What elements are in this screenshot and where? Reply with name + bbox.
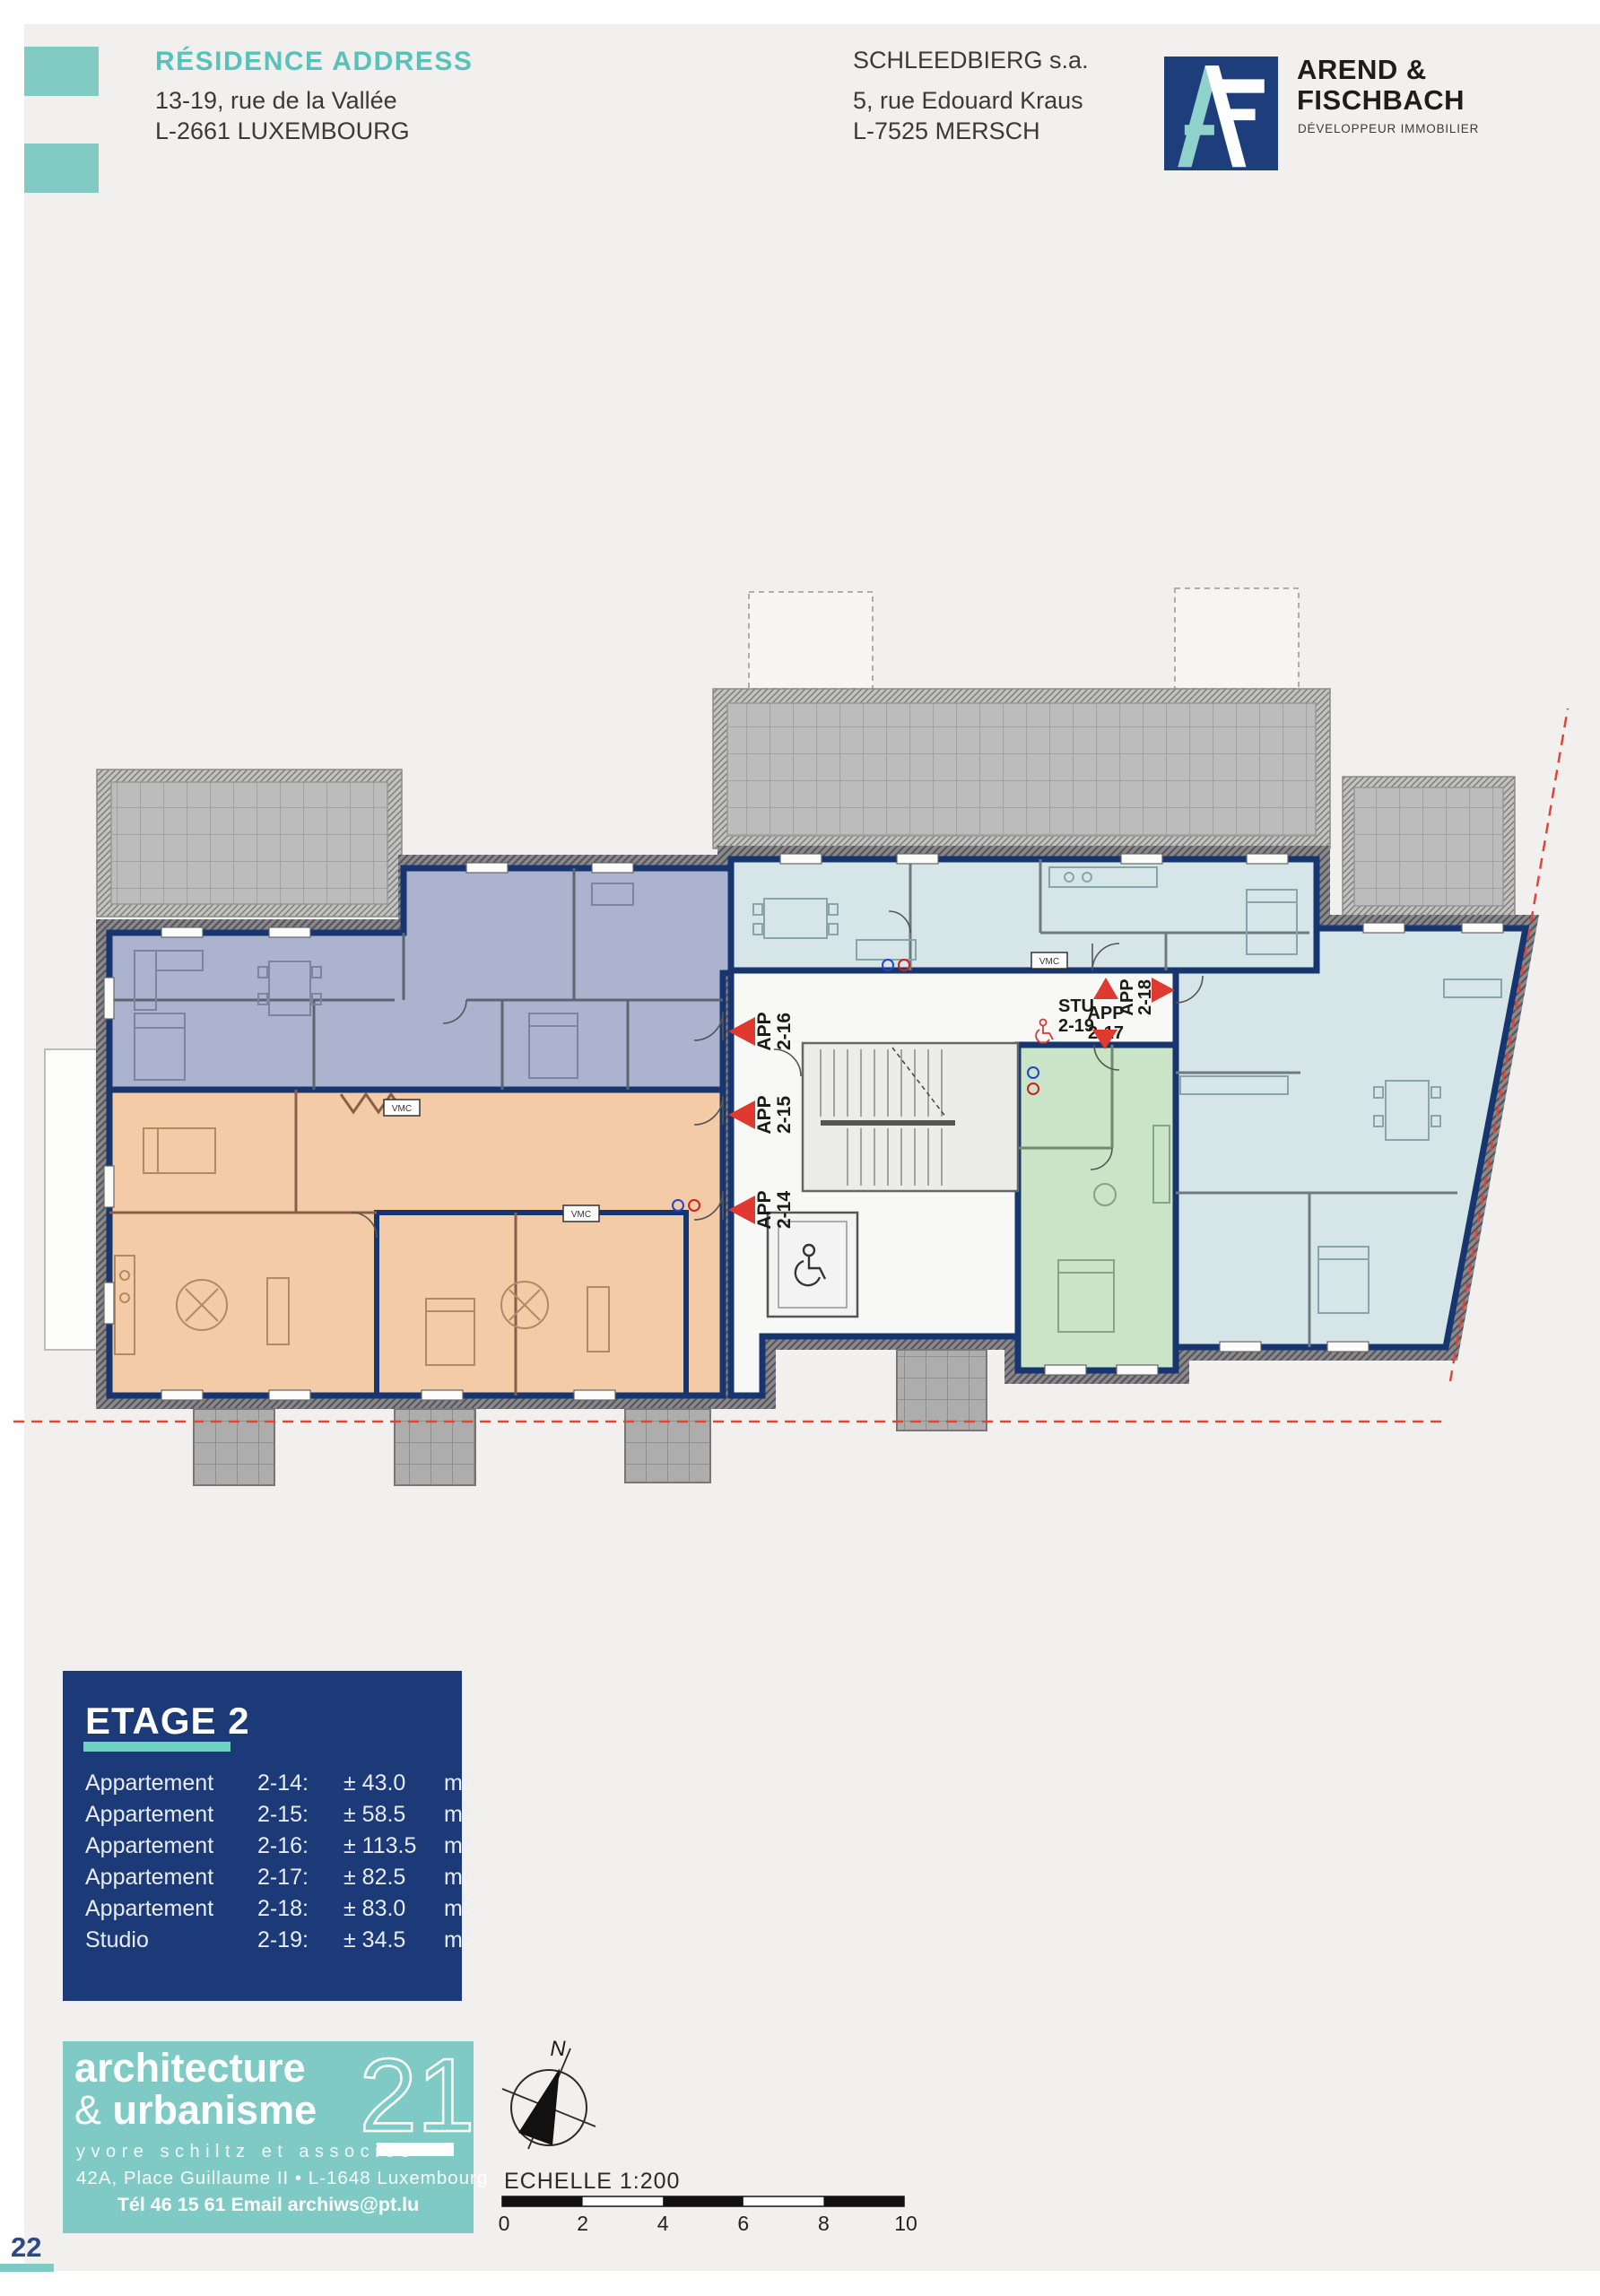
architect-address: 42A, Place Guillaume II • L-1648 Luxembo… <box>76 2168 488 2189</box>
unit-area: ± 113.5 <box>343 1833 444 1859</box>
unit-row: Appartement 2-17: ± 82.5 m² <box>85 1862 453 1893</box>
architect-logo-block: architecture & urbanisme 21 yvore schilt… <box>63 2041 474 2233</box>
roof-terrace-top-left <box>97 770 402 917</box>
unit-row: Appartement 2-18: ± 83.0 m² <box>85 1893 453 1925</box>
roof-outline-1 <box>749 592 873 689</box>
svg-text:2-19: 2-19 <box>1058 1016 1094 1036</box>
svg-text:2-14: 2-14 <box>774 1191 795 1229</box>
svg-text:4: 4 <box>657 2212 669 2235</box>
unit-m2: m² <box>444 1833 489 1859</box>
unit-row: Appartement 2-14: ± 43.0 m² <box>85 1768 453 1799</box>
scale-bar: ECHELLE 1:200 0 2 4 6 8 10 <box>499 2169 917 2235</box>
apartment-2-17-area <box>731 859 1317 970</box>
stairwell <box>803 1043 1018 1191</box>
architect-number-21: 21 <box>359 2047 475 2145</box>
unit-row: Appartement 2-15: ± 58.5 m² <box>85 1799 453 1831</box>
unit-number: 2-19: <box>257 1927 343 1953</box>
unit-list: Appartement 2-14: ± 43.0 m² Appartement … <box>85 1768 453 1956</box>
unit-type: Studio <box>85 1927 257 1953</box>
svg-text:6: 6 <box>737 2212 749 2235</box>
page-number: 22 <box>11 2231 41 2264</box>
svg-text:APP: APP <box>754 1190 775 1229</box>
unit-m2: m² <box>444 1802 489 1828</box>
svg-text:APP: APP <box>754 1095 775 1134</box>
svg-text:21: 21 <box>359 2037 474 2153</box>
compass: N <box>502 2037 596 2149</box>
svg-text:APP: APP <box>1117 978 1137 1015</box>
unit-area: ± 34.5 <box>343 1927 444 1953</box>
architect-line2-word: urbanisme <box>113 2087 317 2133</box>
scale-ticks: 0 2 4 6 8 10 <box>499 2212 917 2235</box>
unit-number: 2-15: <box>257 1802 343 1828</box>
unit-m2: m² <box>444 1770 489 1796</box>
unit-type: Appartement <box>85 1833 257 1859</box>
unit-area: ± 58.5 <box>343 1802 444 1828</box>
unit-number: 2-16: <box>257 1833 343 1859</box>
unit-area: ± 82.5 <box>343 1865 444 1891</box>
apartment-2-15-area <box>109 1090 723 1396</box>
unit-area: ± 83.0 <box>343 1896 444 1922</box>
studio-2-19-area <box>1018 1045 1176 1370</box>
scale-label: ECHELLE 1:200 <box>504 2169 680 2194</box>
unit-row: Appartement 2-16: ± 113.5 m² <box>85 1831 453 1862</box>
floor-info-box: ETAGE 2 Appartement 2-14: ± 43.0 m² Appa… <box>63 1671 462 2001</box>
unit-row: Studio 2-19: ± 34.5 m² <box>85 1925 453 1956</box>
vmc-label: VMC <box>392 1104 412 1114</box>
apartment-2-18-area <box>1176 928 1526 1347</box>
unit-area: ± 43.0 <box>343 1770 444 1796</box>
unit-type: Appartement <box>85 1865 257 1891</box>
unit-type: Appartement <box>85 1802 257 1828</box>
svg-text:2-16: 2-16 <box>774 1013 795 1050</box>
svg-text:8: 8 <box>818 2212 830 2235</box>
compass-north-label: N <box>550 2037 566 2061</box>
vmc-label: VMC <box>1039 957 1059 967</box>
vmc-label: VMC <box>571 1210 591 1220</box>
architect-contact: Tél 46 15 61 Email archiws@pt.lu <box>63 2194 474 2216</box>
page-number-underline <box>0 2264 54 2272</box>
unit-number: 2-14: <box>257 1770 343 1796</box>
unit-m2: m² <box>444 1896 489 1922</box>
svg-text:2-15: 2-15 <box>774 1096 795 1134</box>
roof-terrace-top-center <box>713 689 1330 848</box>
svg-text:2-18: 2-18 <box>1135 979 1155 1015</box>
svg-text:STU: STU <box>1058 996 1094 1016</box>
floor-title-underline <box>83 1742 230 1752</box>
svg-text:2: 2 <box>577 2212 588 2235</box>
architect-line2: & urbanisme <box>74 2087 317 2134</box>
unit-number: 2-17: <box>257 1865 343 1891</box>
unit-type: Appartement <box>85 1770 257 1796</box>
page: RÉSIDENCE ADDRESS 13-19, rue de la Vallé… <box>0 0 1600 2296</box>
unit-number: 2-18: <box>257 1896 343 1922</box>
unit-m2: m² <box>444 1927 489 1953</box>
architect-line1: architecture <box>74 2045 306 2092</box>
roof-terrace-top-right <box>1343 777 1515 917</box>
ampersand: & <box>74 2087 101 2133</box>
svg-text:0: 0 <box>499 2212 510 2235</box>
svg-text:APP: APP <box>754 1012 775 1050</box>
unit-type: Appartement <box>85 1896 257 1922</box>
svg-text:10: 10 <box>894 2212 917 2235</box>
architect-subtitle: yvore schiltz et associés <box>76 2142 415 2162</box>
unit-m2: m² <box>444 1865 489 1891</box>
floor-title: ETAGE 2 <box>85 1700 462 1743</box>
roof-outline-2 <box>1175 588 1299 689</box>
